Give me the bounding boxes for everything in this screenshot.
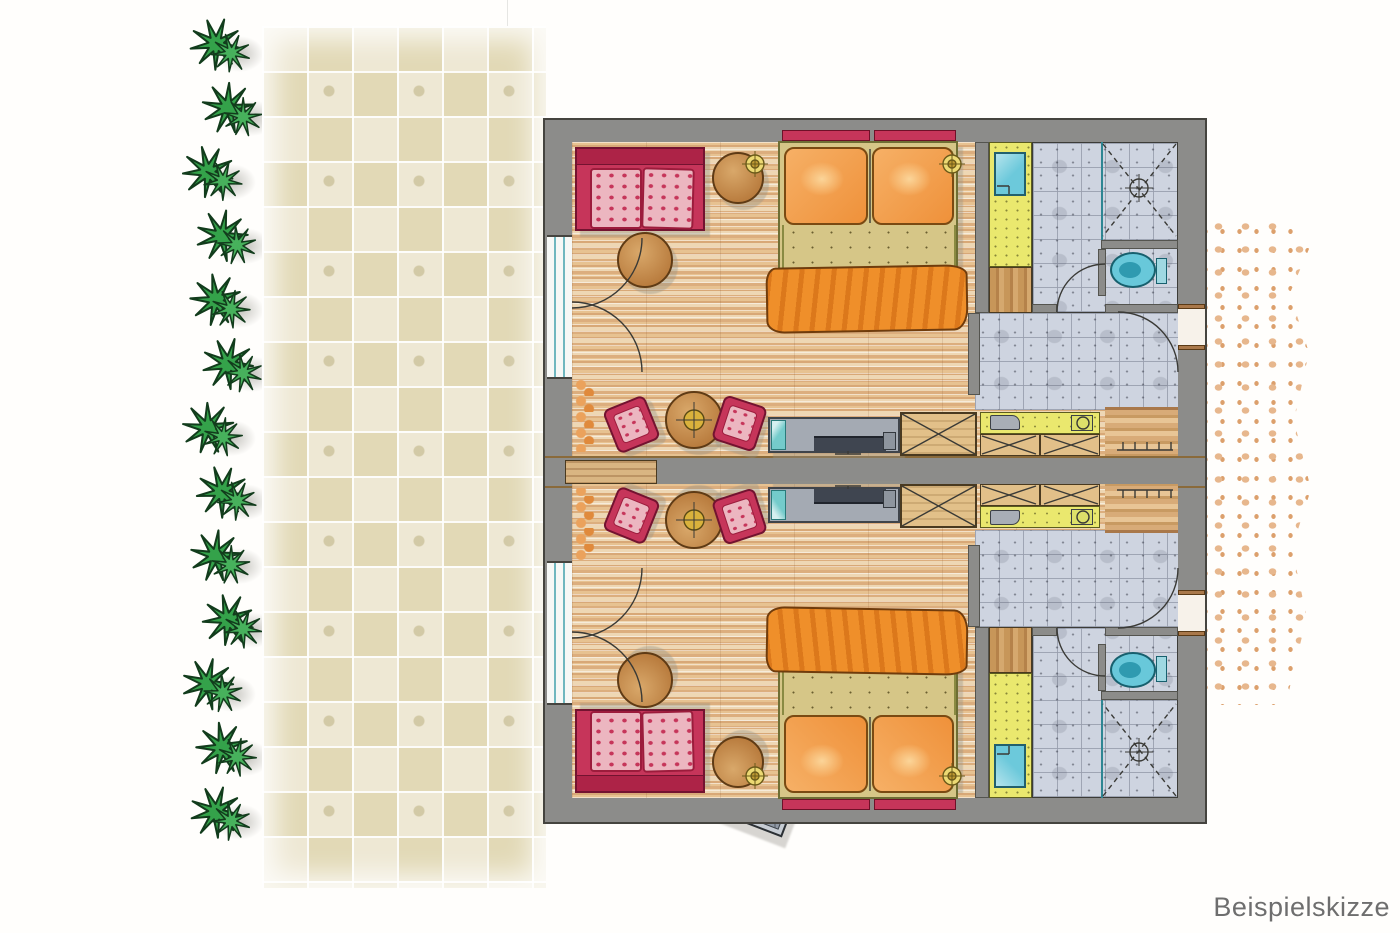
glass-panel [771,420,786,450]
side-table [712,736,764,788]
cabinet-row [980,484,1100,506]
washbasin [994,744,1026,788]
entry-threshold [1105,530,1178,533]
counter-sink [1071,415,1093,431]
terrace-door-opening [547,235,572,379]
toilet [1110,250,1168,290]
sofa-backrest [577,775,703,791]
hedge-plant [180,142,264,208]
hallway-floor [975,530,1178,627]
sofa-cushion [590,711,642,772]
door-jamb [1178,304,1205,309]
bathroom-wall [1032,304,1057,313]
vanity-counter [989,142,1032,267]
shower [1101,700,1178,798]
sofa-cushion [590,168,642,229]
toilet-partition [1098,249,1106,296]
window-shelf [565,460,657,484]
minibar-counter [980,412,1100,434]
bed-blanket [765,606,968,676]
headboard-cushion [874,130,956,141]
curtain [575,488,595,560]
terrace-pavers [262,26,546,888]
door-jamb [1178,345,1205,350]
sofa-cushion [641,167,695,229]
stool [883,490,896,508]
cabinet-row [980,434,1100,456]
floorplan-sketch: Beispielskizze [0,0,1400,933]
partition-wall [968,313,980,395]
sofa [575,147,705,231]
counter-sink [1071,509,1093,525]
entry-door-opening [1178,309,1205,345]
guest-room-lower [545,484,1205,820]
headboard-cushion [782,799,870,810]
vanity-counter [989,673,1032,798]
bed-pillow [784,715,868,793]
sideboard-desk [768,417,900,453]
tv [814,489,886,504]
washbasin [994,152,1026,196]
counter-appliance [990,510,1020,525]
headboard-cushion [782,130,870,141]
coffee-table [617,232,673,288]
hedge-plant [188,526,272,592]
tv [814,436,886,451]
wardrobe [900,484,977,528]
entry-door-opening [1178,595,1205,631]
toilet-tank [1156,258,1167,284]
glass-panel [771,490,786,520]
caption: Beispielskizze [1213,892,1390,923]
shower-partition [1101,691,1178,700]
toilet [1110,650,1168,690]
entry-floor [1105,484,1178,530]
bed-blanket [765,264,968,334]
hallway-floor [975,313,1178,410]
shower-partition [1101,240,1178,249]
side-table [712,152,764,204]
gravel-path [1205,215,1311,705]
hedge-plant [180,654,264,720]
hedge-plant [188,14,272,80]
wardrobe [900,412,977,456]
coffee-table [617,652,673,708]
guest-room-upper [545,120,1205,456]
sofa [575,709,705,793]
storage-niche [989,267,1032,313]
bed-pillow [784,147,868,225]
sofa-backrest [577,149,703,165]
bathroom-wall [1105,627,1178,636]
stool [883,432,896,450]
toilet-bowl [1110,252,1156,288]
headboard-cushion [874,799,956,810]
minibar-counter [980,506,1100,528]
dining-table [665,391,723,449]
partition-wall [975,142,989,313]
hedge-plant [188,782,272,848]
storage-niche [989,627,1032,673]
entry-threshold [1105,407,1178,410]
sideboard-desk [768,487,900,523]
toilet-bowl [1110,652,1156,688]
curtain [575,380,595,452]
bed-pillow [872,147,954,225]
partition-wall [975,627,989,798]
door-jamb [1178,590,1205,595]
hedge-plant [180,398,264,464]
bathroom-wall [1105,304,1178,313]
hedge-plant [188,270,272,336]
toilet-partition [1098,644,1106,691]
building [545,120,1205,822]
entry-floor [1105,410,1178,456]
door-jamb [1178,631,1205,636]
toilet-tank [1156,656,1167,682]
bed-pillow [872,715,954,793]
terrace-door-opening [547,561,572,705]
bathroom-wall [1032,627,1057,636]
partition-wall [968,545,980,627]
counter-appliance [990,415,1020,430]
shower [1101,142,1178,240]
sofa-cushion [641,710,695,772]
